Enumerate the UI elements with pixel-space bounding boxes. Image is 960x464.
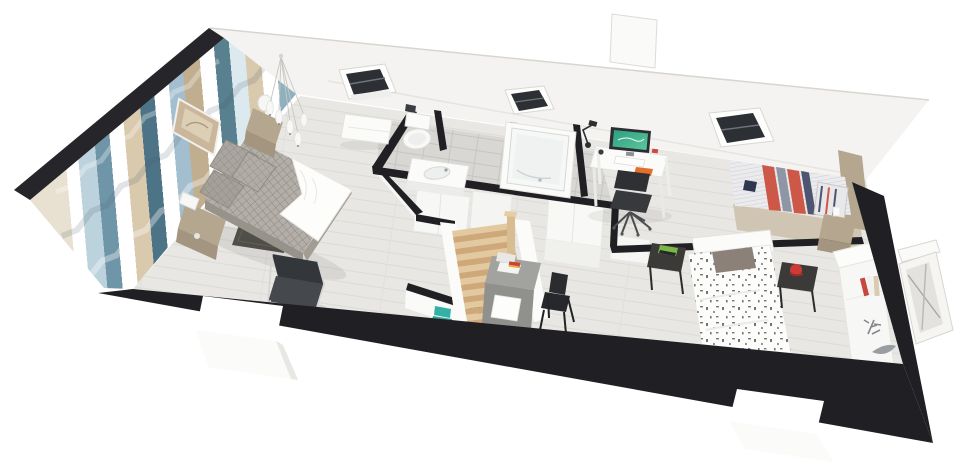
chimney [610,14,657,68]
bathtub [500,122,576,198]
red-item [652,149,658,154]
striped-pillow [814,182,848,220]
floorplan-svg [0,0,960,464]
floorplan-render [0,0,960,464]
white-mug [833,207,840,216]
navy-book [743,180,757,192]
paper-stack [491,295,521,321]
skylight-1 [339,64,396,101]
mug [598,149,603,154]
